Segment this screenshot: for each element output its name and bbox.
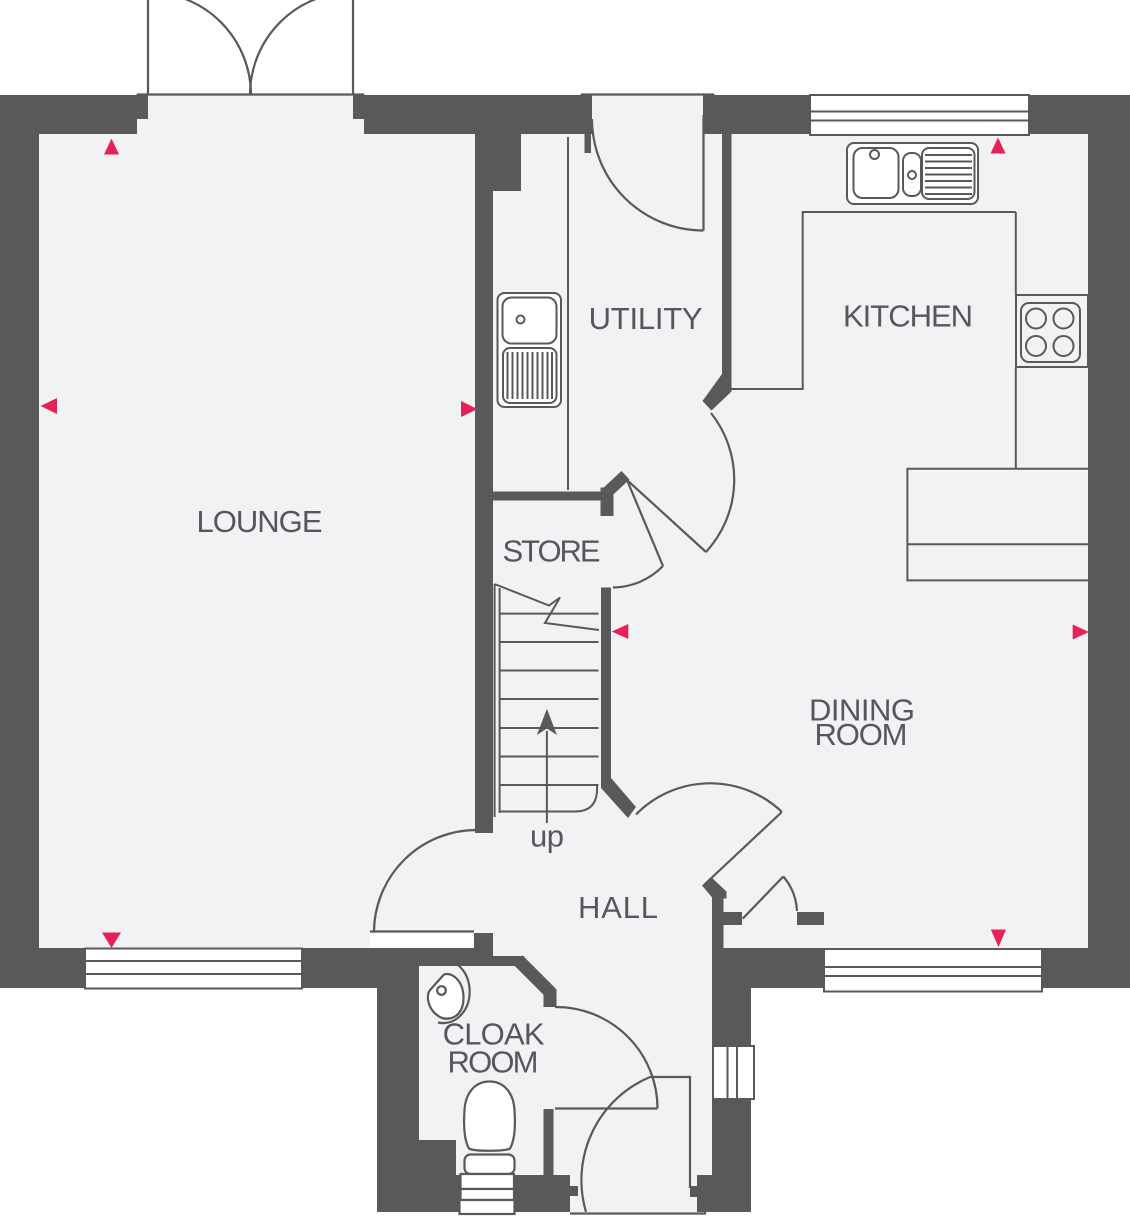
svg-text:ROOM: ROOM — [448, 1045, 539, 1080]
svg-text:HALL: HALL — [578, 890, 658, 925]
svg-text:ROOM: ROOM — [815, 717, 908, 752]
svg-text:STORE: STORE — [503, 534, 601, 569]
svg-text:KITCHEN: KITCHEN — [843, 299, 973, 334]
svg-text:LOUNGE: LOUNGE — [197, 504, 323, 539]
svg-text:up: up — [530, 819, 564, 854]
svg-text:UTILITY: UTILITY — [589, 301, 703, 336]
